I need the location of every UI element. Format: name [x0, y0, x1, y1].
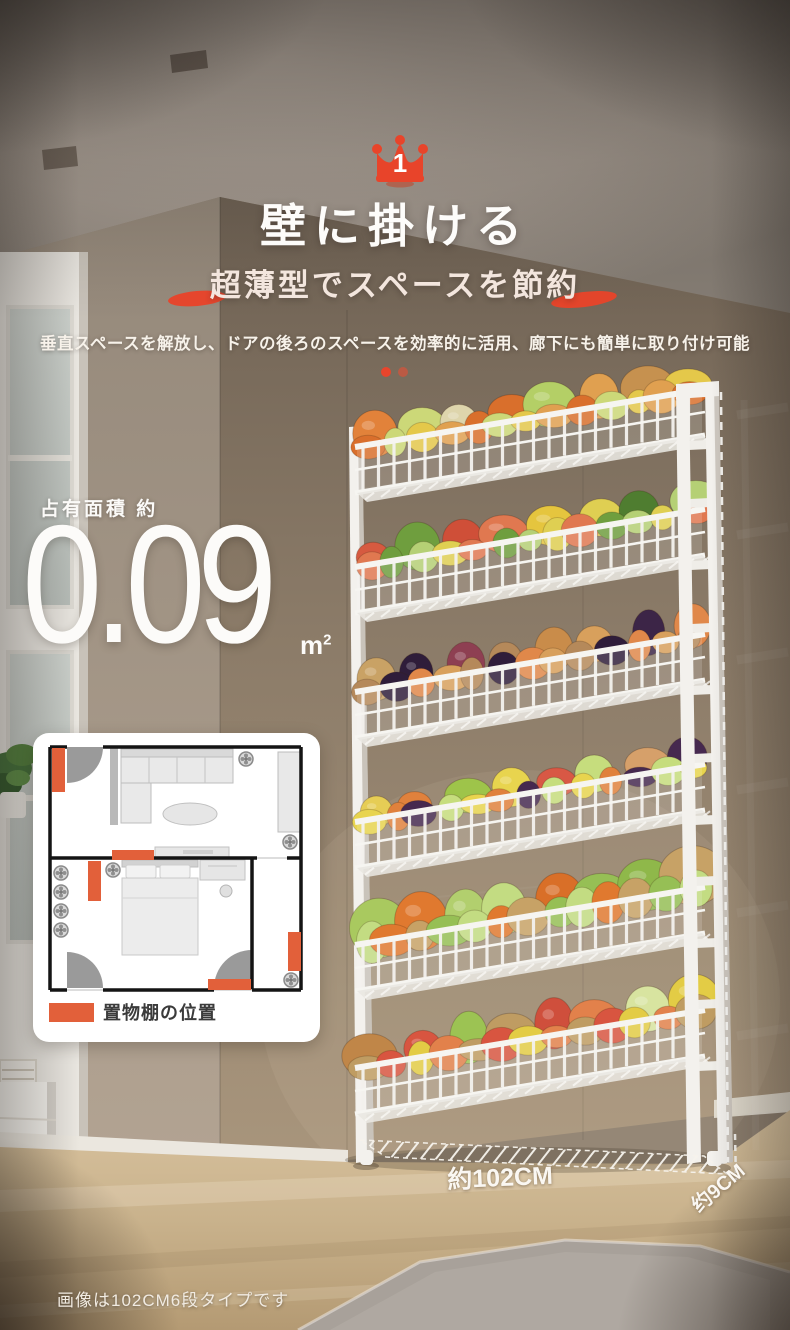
area-value: 0.09: [22, 500, 269, 668]
rack-tier: [352, 604, 712, 747]
page-description: 垂直スペースを解放し、ドアの後ろのスペースを効率的に活用、廊下にも簡単に取り付け…: [0, 330, 790, 354]
rack-tier: [342, 974, 720, 1123]
floorplan-legend: 置物棚の位置: [49, 999, 217, 1025]
crown-rank-icon: 1: [367, 131, 433, 189]
carousel-dot: [398, 367, 408, 377]
carousel-dots: [381, 367, 408, 377]
variant-caption: 画像は102CM6段タイプです: [57, 1286, 289, 1311]
page-subtitle: 超薄型でスペースを節約: [0, 260, 790, 305]
promo-page: 1 壁に掛ける 超薄型でスペースを節約 垂直スペースを解放し、ドアの後ろのスペー…: [0, 0, 790, 1330]
page-title: 壁に掛ける: [0, 190, 790, 256]
floorplan-drawing: [33, 733, 320, 995]
legend-swatch: [49, 1003, 94, 1022]
area-unit: m2: [300, 630, 331, 661]
floorplan-card: 置物棚の位置: [33, 733, 320, 1042]
rack-tier: [355, 481, 722, 622]
carousel-dot: [381, 367, 391, 377]
rank-number: 1: [393, 148, 407, 178]
legend-label: 置物棚の位置: [103, 999, 217, 1025]
rack-tier: [351, 366, 712, 502]
rack-tier: [352, 737, 712, 877]
